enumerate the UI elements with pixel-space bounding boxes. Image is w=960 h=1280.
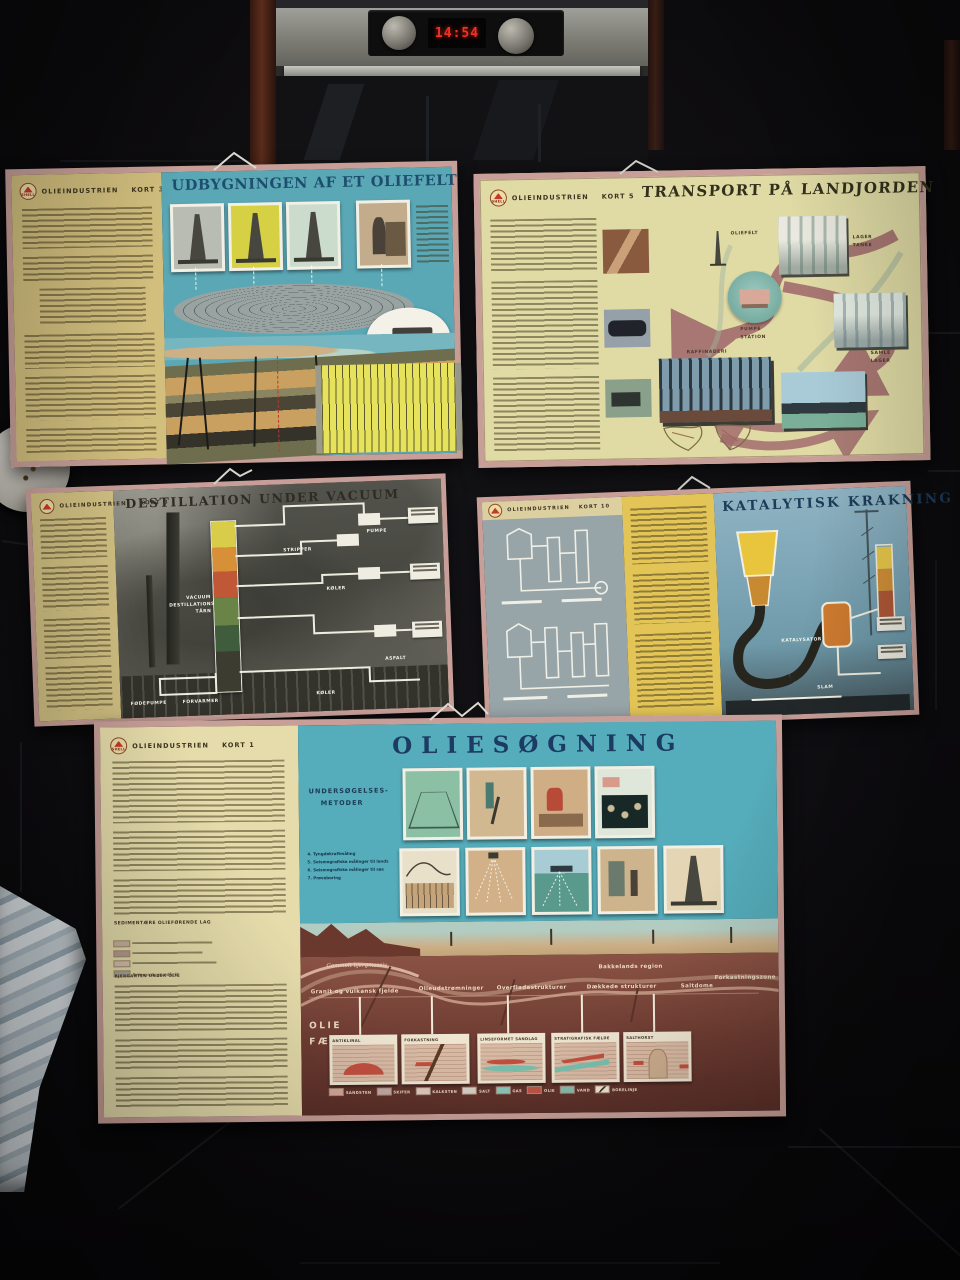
oven: 14:54 xyxy=(276,0,648,166)
legend-swatch xyxy=(596,1086,609,1092)
text-paragraph xyxy=(633,572,711,625)
koeler-label: KØLER xyxy=(327,586,346,592)
desk-shape xyxy=(386,221,406,255)
poster1-series: OLIEINDUSTRIEN xyxy=(42,186,119,195)
legend-item: VAND xyxy=(561,1086,590,1092)
legend-swatch xyxy=(496,1087,509,1093)
text-paragraph xyxy=(45,665,113,711)
legend-item: SKIFER xyxy=(377,1088,410,1094)
region-label: Forkastningszone xyxy=(715,974,776,981)
legend-swatch xyxy=(416,1088,429,1094)
specimen xyxy=(603,777,619,788)
pumpe-label: PUMPE xyxy=(366,529,386,535)
trap-label: SALTHORST xyxy=(626,1034,688,1040)
trap-panel-forkastning: FORKASTNING xyxy=(401,1034,470,1085)
legend-item: SANDSTEN xyxy=(330,1089,372,1095)
trap-label: LINSEFORMET SANDLAG xyxy=(480,1036,542,1042)
method-photo-card xyxy=(530,766,591,839)
shell-pecten-icon xyxy=(491,508,500,514)
text-paragraph xyxy=(114,878,286,916)
poster3-text-column xyxy=(31,491,121,722)
text-paragraph xyxy=(26,427,156,453)
product-label-box xyxy=(877,616,906,631)
oven-top-edge xyxy=(276,0,648,8)
derrick-photo-card xyxy=(228,202,283,271)
product-label-box xyxy=(408,507,439,524)
poster4-header: OLIEINDUSTRIEN KORT 10 xyxy=(488,499,610,518)
oliefelt-label: OLIEFELT xyxy=(731,231,759,236)
legend-row: SANDSTEN SKIFER KALKSTEN SALT GAS OLIE V… xyxy=(330,1085,770,1096)
poster3-photo-area: DESTILLATION UNDER VACUUM VACUUM DESTILL… xyxy=(113,479,449,719)
lager-tanke-label2: TANKE xyxy=(853,243,873,248)
geological-cross-section: Gammelt bjergmassiv Granit og vulkansk f… xyxy=(300,952,780,1115)
region-label: Dækkede strukturer xyxy=(587,984,657,991)
shell-pecten-icon xyxy=(24,186,33,192)
method-item: 4. Tyngdekraftmåling xyxy=(307,850,397,856)
derrick-photo-card xyxy=(170,203,225,272)
tiny-derrick xyxy=(450,932,452,946)
seismic-fan xyxy=(468,850,519,907)
poster1-title: UDBYGNINGEN AF ET OLIEFELT xyxy=(171,172,457,194)
slam-label: SLAM xyxy=(817,685,833,691)
pipeline-maps xyxy=(660,421,757,455)
hanging-wire xyxy=(210,466,260,486)
survey-grid xyxy=(408,792,460,828)
region-label: Gammelt bjergmassiv xyxy=(326,963,387,970)
tiny-derrick xyxy=(730,927,732,943)
text-paragraph xyxy=(115,1038,287,1070)
samle-lager-label2: LAGER xyxy=(871,359,891,364)
poster3-kort: KORT 8 xyxy=(140,499,169,506)
map-key-list xyxy=(416,205,449,264)
trap-label: FORKASTNING xyxy=(404,1037,466,1043)
text-list xyxy=(39,287,146,327)
poster4-header-strip: OLIEINDUSTRIEN KORT 10 xyxy=(482,497,623,520)
pipe-overlay xyxy=(113,479,449,719)
method-item: 7. Prøveboring xyxy=(308,874,398,880)
legend-swatch xyxy=(377,1089,390,1095)
text-paragraph xyxy=(630,506,708,565)
derrick-icon xyxy=(231,205,280,268)
oven-clock-display: 14:54 xyxy=(428,18,486,48)
shell-logo-text: SHELL xyxy=(112,747,126,751)
trap-art xyxy=(626,1041,688,1079)
shell-pecten-icon xyxy=(42,503,51,509)
poster4-text-column xyxy=(622,493,723,720)
glass-reflection xyxy=(473,80,559,160)
wood-cabinet-trim xyxy=(250,0,276,166)
hanging-wire xyxy=(676,474,716,492)
trap-art xyxy=(404,1044,466,1082)
wood-cabinet-trim xyxy=(944,40,960,150)
poster1-chart-area: UDBYGNINGEN AF ET OLIEFELT xyxy=(161,167,456,459)
derrick-photo-card xyxy=(286,201,341,270)
strata-mini xyxy=(406,883,454,908)
samle-lager-photo xyxy=(834,292,907,347)
oven-knob-left[interactable] xyxy=(382,16,416,50)
strata-heading: SEDIMENTÆRE OLIEFØRENDE LAG xyxy=(114,920,211,926)
text-paragraph xyxy=(23,255,153,283)
legend-swatch xyxy=(561,1087,574,1093)
metoder-label: UNDERSØGELSES- xyxy=(309,787,389,796)
kitchen-floor-scene: 14:54 SHELL OLIEINDUSTRIEN KORT 3 xyxy=(0,0,960,1280)
marine-seismic-fan xyxy=(534,869,584,910)
tile-grout-line xyxy=(935,560,937,710)
product-label-box xyxy=(410,563,441,580)
poster4-kort: KORT 10 xyxy=(579,503,611,510)
method-photo-card xyxy=(466,767,527,840)
method-photo-card xyxy=(594,766,655,839)
region-label: Bakkelands region xyxy=(598,964,662,971)
rock-ledge xyxy=(539,813,582,827)
oven-knob-right[interactable] xyxy=(498,18,534,54)
raffinaderi-label: RAFFINADERI xyxy=(687,350,728,356)
trap-label: ANTIKLINAL xyxy=(332,1037,394,1043)
glass-reflection xyxy=(426,96,429,162)
trap-label: STRATIGRAFISK FÆLDE xyxy=(554,1035,616,1041)
samle-lager-label: SAMLE xyxy=(871,351,891,356)
lager-tanke-label: LAGER xyxy=(853,235,873,240)
taarn-label: VACUUM DESTILLATIONS TÅRN xyxy=(169,595,212,617)
hanging-wire xyxy=(428,700,492,722)
hanging-wire xyxy=(618,158,664,176)
oven-control-fascia: 14:54 xyxy=(276,8,648,66)
glass-reflection xyxy=(538,104,541,162)
trap-panel-stratigrafisk: STRATIGRAFISK FÆLDE xyxy=(551,1032,620,1083)
text-paragraph xyxy=(25,375,156,421)
derrick-icon xyxy=(666,848,721,911)
legend-item: OLIE xyxy=(528,1087,555,1093)
cracker-diagram xyxy=(714,504,914,717)
poster5-kort: KORT 1 xyxy=(222,740,255,748)
text-paragraph xyxy=(44,617,111,659)
method-photo-card xyxy=(531,846,592,915)
geologist-figure xyxy=(547,788,563,811)
text-paragraph xyxy=(24,333,155,369)
legend-swatch xyxy=(528,1087,541,1093)
oven-clock-time: 14:54 xyxy=(435,26,479,41)
text-paragraph xyxy=(112,760,285,824)
legend-item: SALT xyxy=(463,1087,490,1093)
poster5-series: OLIEINDUSTRIEN xyxy=(132,741,209,750)
landscape-strip xyxy=(300,918,778,957)
poster-oliesoegning: SHELL OLIEINDUSTRIEN KORT 1 SEDIMENTÆRE … xyxy=(94,714,786,1123)
tiny-derrick xyxy=(550,929,552,945)
method-list: 4. Tyngdekraftmåling 5. Seismografiske m… xyxy=(307,850,397,883)
method-photo-card xyxy=(402,768,463,841)
text-paragraph xyxy=(115,984,287,1032)
gravity-curve xyxy=(404,856,452,883)
poster1-kort: KORT 3 xyxy=(131,185,164,194)
olie-faelder-label: OLIE xyxy=(309,1021,342,1031)
method-photo-card xyxy=(465,847,526,916)
stripper-label: STRIPPER xyxy=(283,547,312,553)
fossils-panel xyxy=(602,795,648,828)
legend-item: KALKSTEN xyxy=(416,1088,457,1094)
poster5-title: OLIESØGNING xyxy=(392,729,685,759)
process-diagram-2 xyxy=(492,615,623,708)
refinery-photo xyxy=(659,357,772,423)
poster4-series: OLIEINDUSTRIEN xyxy=(507,505,570,513)
shell-logo-text: SHELL xyxy=(21,192,35,196)
asfalt-label: ASFALT xyxy=(385,656,406,662)
poster3-series: OLIEINDUSTRIEN xyxy=(59,501,127,509)
poster-katalytisk-krakning: OLIEINDUSTRIEN KORT 10 xyxy=(477,481,920,731)
shell-logo: SHELL xyxy=(110,737,127,754)
oilfield-derrick-icon xyxy=(708,226,727,270)
poster1-header: SHELL OLIEINDUSTRIEN KORT 3 xyxy=(19,180,164,200)
wood-cabinet-trim xyxy=(648,0,664,150)
text-paragraph xyxy=(40,517,107,559)
region-label: Overfladestrukturer xyxy=(497,985,567,992)
tile-grout-line xyxy=(788,1146,960,1148)
text-paragraph xyxy=(42,565,110,611)
method-item: 6. Seismografiske målinger til søs xyxy=(307,866,397,872)
oven-door-handle[interactable] xyxy=(284,66,640,76)
text-paragraph xyxy=(635,632,714,709)
tanker-ship-photo xyxy=(781,371,866,428)
poster-transport-paa-landjorden: SHELL OLIEINDUSTRIEN KORT 5 TRANSPORT PÅ… xyxy=(473,166,930,468)
product-label-box xyxy=(412,621,443,638)
legend-item: BORELINJE xyxy=(596,1086,637,1092)
method-photo-card xyxy=(597,846,658,915)
legend-swatch xyxy=(463,1088,476,1094)
method-photo-card xyxy=(663,845,724,914)
poster5-text-column: SHELL OLIEINDUSTRIEN KORT 1 SEDIMENTÆRE … xyxy=(100,725,302,1117)
trap-art xyxy=(332,1044,394,1082)
tile-grout-line xyxy=(20,742,22,892)
process-diagram-1 xyxy=(489,521,620,614)
glass-reflection xyxy=(304,84,365,160)
shell-logo xyxy=(488,503,503,518)
shell-logo xyxy=(39,499,55,515)
poster-udbygningen-af-et-oliefelt: SHELL OLIEINDUSTRIEN KORT 3 UDBYGNINGEN … xyxy=(5,161,463,468)
pumpe-station-label2: STATION xyxy=(740,335,766,340)
storage-tanks-photo xyxy=(778,215,847,274)
trap-panel-antiklinal: ANTIKLINAL xyxy=(329,1034,398,1085)
poster4-diagram-column: OLIEINDUSTRIEN KORT 10 xyxy=(482,497,630,726)
trap-panel-salthorst: SALTHORST xyxy=(623,1031,692,1082)
method-photo-card xyxy=(399,848,460,917)
poster1-text-column: SHELL OLIEINDUSTRIEN KORT 3 xyxy=(11,172,166,461)
region-label: Olieudstrømninger xyxy=(419,986,484,993)
text-paragraph xyxy=(116,1076,288,1108)
derrick-icon xyxy=(289,204,338,267)
shell-pecten-icon xyxy=(114,741,123,747)
derrick-icon xyxy=(173,206,222,269)
person-silhouette xyxy=(373,217,386,254)
trap-panel-linseformet: LINSEFORMET SANDLAG xyxy=(477,1033,546,1084)
tile-grout-line xyxy=(300,1262,720,1264)
product-label-box xyxy=(878,644,907,659)
hanging-wire xyxy=(212,150,272,172)
poster5-header: SHELL OLIEINDUSTRIEN KORT 1 xyxy=(110,736,255,755)
trap-art xyxy=(554,1042,616,1080)
text-paragraph xyxy=(113,830,285,872)
mountains xyxy=(300,922,420,957)
legend-swatch xyxy=(330,1089,343,1095)
surveyor-figure xyxy=(486,782,494,808)
panel-connectors xyxy=(301,992,779,1037)
oven-door-glass xyxy=(276,76,648,166)
instrument-shed xyxy=(608,861,625,896)
metoder-label2: METODER xyxy=(321,799,364,807)
legend-item: GAS xyxy=(496,1087,522,1093)
office-photo-card xyxy=(356,200,411,269)
region-label: Saltdome xyxy=(681,983,714,989)
operator-figure xyxy=(631,870,638,896)
shell-logo: SHELL xyxy=(19,183,36,200)
well-log-panel xyxy=(315,363,463,454)
oven-control-panel: 14:54 xyxy=(368,10,564,56)
poster5-methods-area: OLIESØGNING UNDERSØGELSES- METODER 4. Ty… xyxy=(298,720,778,923)
pumpe-station-label: PUMPE xyxy=(740,327,761,332)
poster-destillation-under-vacuum: DESTILLATION UNDER VACUUM VACUUM DESTILL… xyxy=(26,473,454,726)
under-olie-label: BJERGARTEN UNDER OLIE xyxy=(115,973,181,979)
tile-grout-line xyxy=(928,470,960,472)
trap-art xyxy=(480,1043,542,1081)
tiny-derrick xyxy=(652,930,654,944)
text-paragraph xyxy=(22,207,153,249)
poster4-photo-area: KATALYTISK KRAKNING KATALYSATOR SLAM xyxy=(714,486,914,717)
koeler-label-2: KØLER xyxy=(316,691,335,697)
method-item: 5. Seismografiske målinger til lands xyxy=(307,858,397,864)
region-label: Granit og vulkansk fjelde xyxy=(311,988,399,995)
